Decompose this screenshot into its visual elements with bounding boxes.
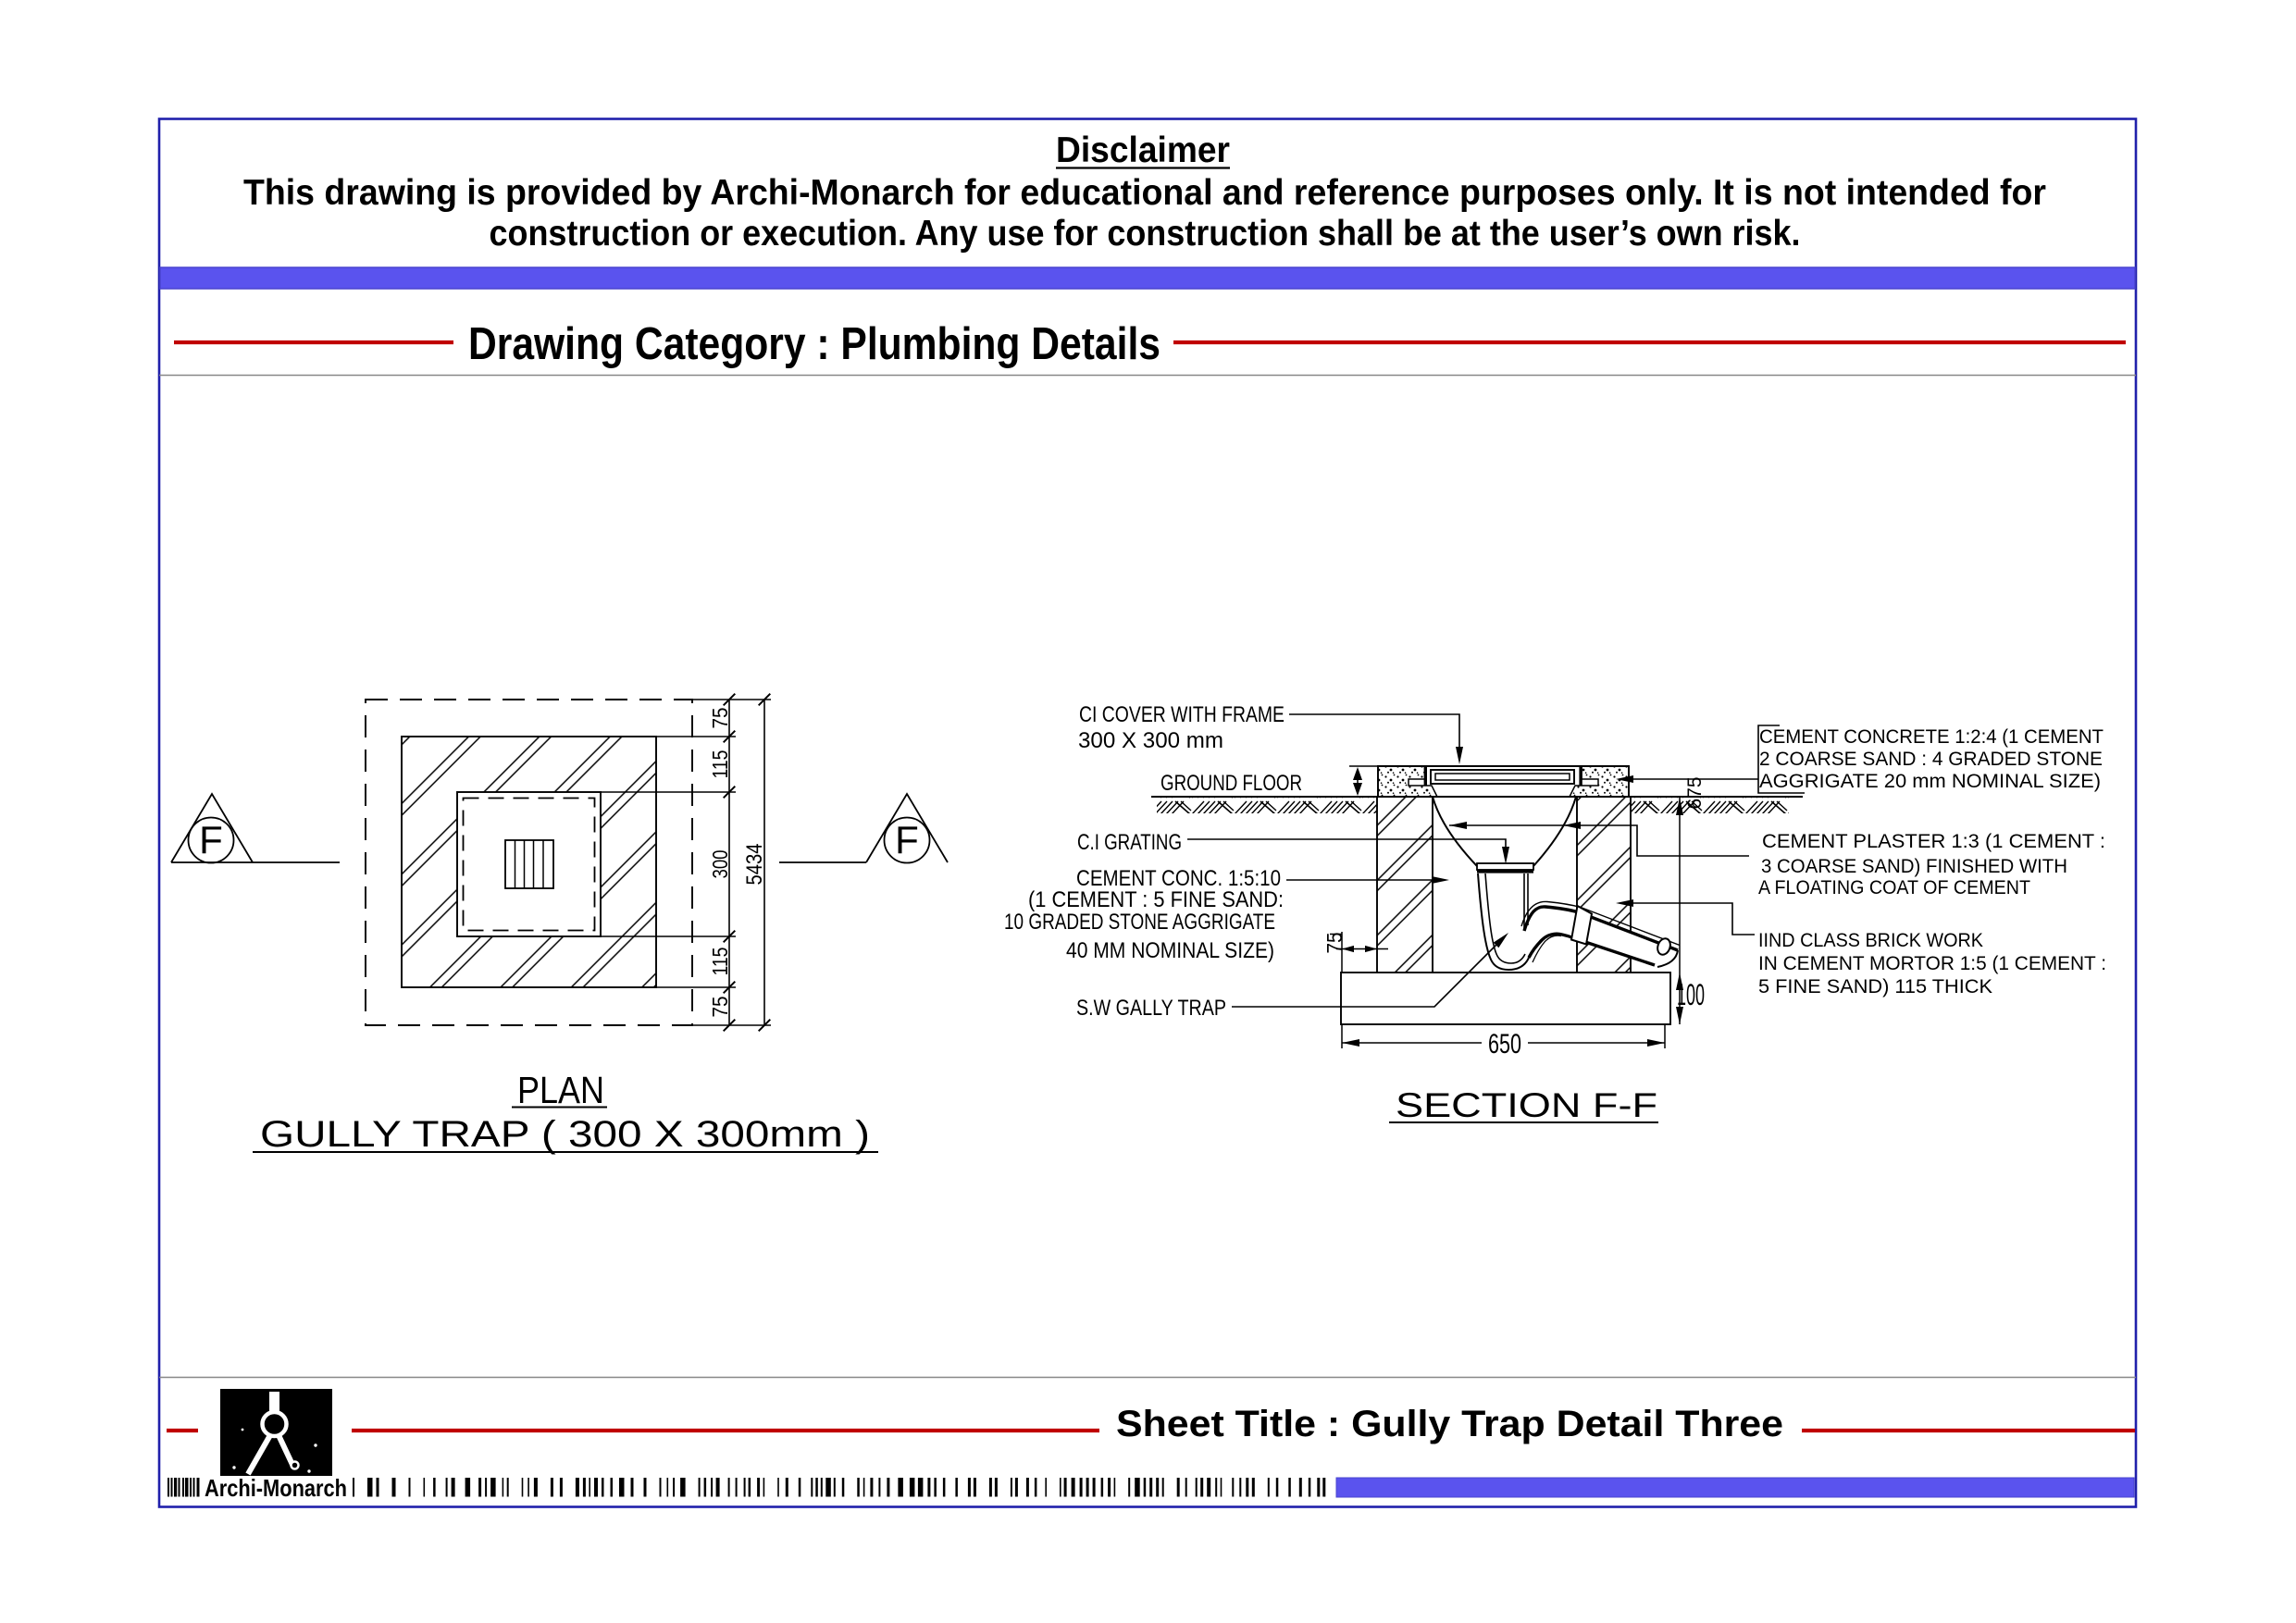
svg-text:F: F — [199, 818, 223, 861]
svg-text:40 MM NOMINAL SIZE): 40 MM NOMINAL SIZE) — [1066, 938, 1274, 963]
svg-text:CEMENT CONCRETE 1:2:4 (1 CEMEN: CEMENT CONCRETE 1:2:4 (1 CEMENT — [1759, 726, 2104, 748]
svg-text:3 COARSE SAND) FINISHED WITH: 3 COARSE SAND) FINISHED WITH — [1761, 856, 2067, 877]
svg-text:SECTION F-F: SECTION F-F — [1396, 1086, 1657, 1124]
svg-text:Disclaimer: Disclaimer — [1056, 130, 1230, 170]
svg-text:115: 115 — [708, 750, 732, 779]
svg-text:5 FINE SAND) 115 THICK: 5 FINE SAND) 115 THICK — [1758, 976, 1992, 997]
svg-text:S.W GALLY TRAP: S.W GALLY TRAP — [1076, 996, 1226, 1021]
svg-text:115: 115 — [708, 948, 732, 976]
svg-text:PLAN: PLAN — [517, 1069, 604, 1111]
svg-text:C.I GRATING: C.I GRATING — [1077, 830, 1182, 855]
svg-text:675: 675 — [1684, 777, 1706, 810]
svg-text:GROUND FLOOR: GROUND FLOOR — [1160, 771, 1302, 796]
svg-text:IIND CLASS BRICK WORK: IIND CLASS BRICK WORK — [1758, 930, 1983, 951]
svg-text:75: 75 — [708, 708, 732, 729]
svg-text:Drawing Category : Plumbing De: Drawing Category : Plumbing Details — [468, 319, 1160, 369]
svg-text:Sheet Title : Gully Trap Detai: Sheet Title : Gully Trap Detail Three — [1116, 1404, 1783, 1444]
svg-text:2 COARSE SAND : 4 GRADED STONE: 2 COARSE SAND : 4 GRADED STONE — [1759, 749, 2103, 770]
svg-text:5434: 5434 — [742, 844, 767, 886]
svg-text:GULLY TRAP ( 300 X 300mm: GULLY TRAP ( 300 X 300mm ) — [260, 1114, 870, 1155]
svg-text:75: 75 — [1322, 933, 1347, 954]
svg-text:A FLOATING COAT OF CEMENT: A FLOATING COAT OF CEMENT — [1758, 877, 2030, 898]
svg-text:CEMENT PLASTER 1:3 (1 CEMENT :: CEMENT PLASTER 1:3 (1 CEMENT : — [1762, 831, 2105, 852]
svg-text:F: F — [895, 818, 919, 861]
svg-text:300: 300 — [708, 850, 732, 879]
svg-text:300 X 300 mm: 300 X 300 mm — [1078, 728, 1223, 753]
svg-text:Archi-Monarch: Archi-Monarch — [205, 1474, 347, 1502]
svg-text:75: 75 — [708, 997, 732, 1018]
svg-text:CI COVER WITH FRAME: CI COVER WITH FRAME — [1079, 702, 1285, 727]
svg-text:This drawing is provided by Ar: This drawing is provided by Archi-Monarc… — [243, 173, 2046, 213]
svg-text:AGGRIGATE 20 mm NOMINAL SIZE): AGGRIGATE 20 mm NOMINAL SIZE) — [1759, 771, 2101, 792]
svg-text:10 GRADED STONE AGGRIGATE: 10 GRADED STONE AGGRIGATE — [1004, 910, 1275, 935]
svg-text:(1 CEMENT : 5 FINE SAND:: (1 CEMENT : 5 FINE SAND: — [1028, 887, 1284, 912]
svg-text:650: 650 — [1488, 1029, 1521, 1059]
svg-text:IN CEMENT MORTOR 1:5 (1 CEMENT: IN CEMENT MORTOR 1:5 (1 CEMENT : — [1758, 953, 2106, 974]
svg-text:construction or execution. Any: construction or execution. Any use for c… — [490, 214, 1801, 254]
svg-text:100: 100 — [1677, 978, 1705, 1011]
